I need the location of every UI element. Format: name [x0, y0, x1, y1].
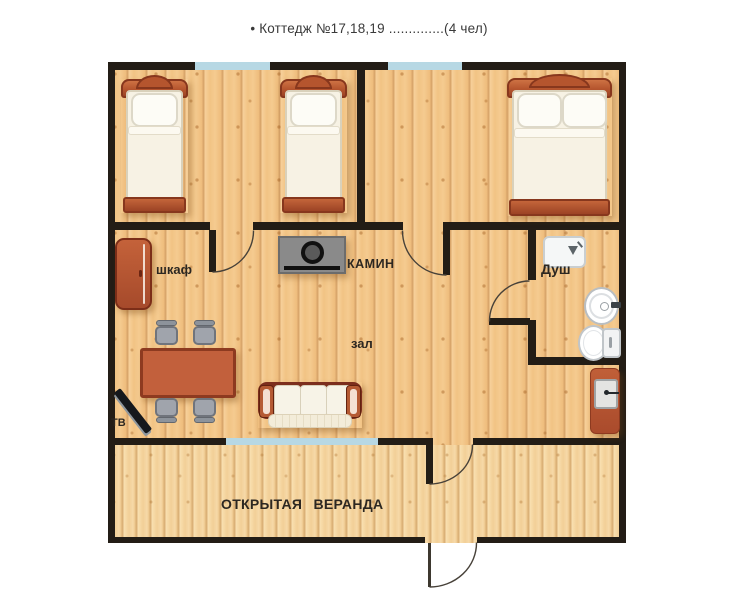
bed-footboard — [123, 197, 186, 213]
chair-seat — [193, 398, 216, 417]
bed-pillow — [290, 93, 337, 127]
door-leaf-bathroom — [489, 318, 530, 325]
wall-top — [270, 62, 388, 70]
wardrobe — [115, 238, 152, 310]
plan-title: • Коттедж №17,18,19 ..............(4 чел… — [0, 21, 738, 36]
wall-veranda-outer — [477, 537, 626, 543]
wall-bathroom — [528, 320, 536, 358]
bed-fold — [287, 126, 340, 135]
window-hall — [226, 438, 378, 445]
wall-top — [108, 62, 195, 70]
flush-icon — [609, 337, 612, 348]
dining-table — [140, 348, 236, 398]
bed-fold — [514, 128, 605, 138]
chair-back — [194, 417, 215, 423]
sofa-front — [268, 414, 352, 428]
double-bed — [507, 78, 612, 216]
wall-veranda — [473, 438, 626, 445]
chair — [193, 320, 216, 347]
label-hall: зал — [351, 336, 373, 351]
chair — [193, 396, 216, 423]
wall-bathroom — [528, 357, 619, 365]
wall-bathroom — [528, 230, 536, 280]
bed-pillow — [562, 93, 607, 128]
door-arc-entrance — [430, 543, 477, 588]
drain-icon — [600, 302, 609, 311]
sofa-arm — [346, 385, 361, 418]
single-bed-1 — [121, 79, 188, 213]
floor-plan: • Коттедж №17,18,19 ..............(4 чел… — [0, 0, 738, 600]
fireplace — [278, 236, 346, 274]
chair — [155, 396, 178, 423]
window-bedroom-right — [388, 62, 462, 70]
toilet-tank — [602, 328, 621, 358]
faucet-icon — [611, 302, 621, 308]
label-fireplace: КАМИН — [347, 257, 395, 271]
sofa-arm — [259, 385, 274, 418]
water-heater — [590, 368, 620, 434]
sofa — [258, 382, 362, 428]
bed-footboard — [282, 197, 345, 213]
window-bedroom-left — [195, 62, 270, 70]
bed-fold — [128, 126, 181, 135]
chair — [155, 320, 178, 347]
shower-head-icon — [568, 246, 578, 255]
toilet-seat — [583, 330, 604, 356]
wall-bedrooms — [108, 222, 210, 230]
wardrobe-handle-icon — [139, 270, 142, 277]
chair-seat — [155, 326, 178, 345]
wall-bedrooms — [253, 222, 403, 230]
chair-seat — [193, 326, 216, 345]
door-leaf-entrance — [428, 543, 431, 587]
single-bed-2 — [280, 79, 347, 213]
label-tv: ТВ — [111, 417, 126, 429]
wall-veranda — [378, 438, 433, 445]
door-leaf-bedroom-left — [209, 230, 216, 272]
bed-pillow — [517, 93, 562, 128]
sofa-cushion — [274, 385, 301, 417]
wall-bedroom-divider — [357, 70, 365, 222]
bed-footboard — [509, 199, 610, 216]
door-leaf-bedroom-right — [443, 230, 450, 275]
veranda-floor — [108, 445, 626, 543]
wall-top — [462, 62, 626, 70]
sofa-cushion — [300, 385, 327, 417]
chair-back — [156, 417, 177, 423]
wall-bedrooms — [443, 222, 619, 230]
washbasin — [584, 287, 619, 325]
wall-veranda-outer — [108, 537, 425, 543]
heater-handle-icon — [604, 390, 609, 395]
label-shower: Душ — [541, 261, 571, 277]
door-leaf-hall-veranda — [426, 445, 433, 484]
bed-pillow — [131, 93, 178, 127]
label-wardrobe: шкаф — [156, 262, 192, 277]
wall-veranda — [108, 438, 226, 445]
chair-seat — [155, 398, 178, 417]
wall-left — [108, 62, 115, 543]
label-veranda: ОТКРЫТАЯ ВЕРАНДА — [221, 496, 383, 512]
fireplace-ring-icon — [301, 241, 324, 264]
fireplace-hearth — [284, 266, 340, 270]
